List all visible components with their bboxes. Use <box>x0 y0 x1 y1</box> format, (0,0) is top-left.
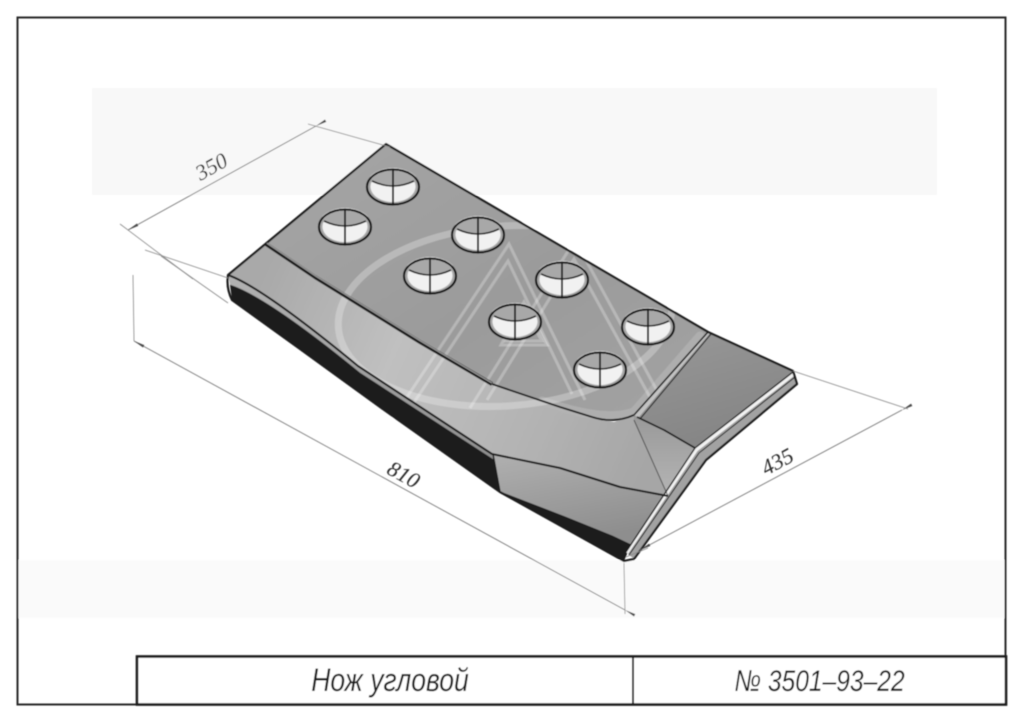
svg-text:Нож угловой: Нож угловой <box>311 663 469 699</box>
svg-text:№ 3501–93–22: № 3501–93–22 <box>734 664 904 698</box>
